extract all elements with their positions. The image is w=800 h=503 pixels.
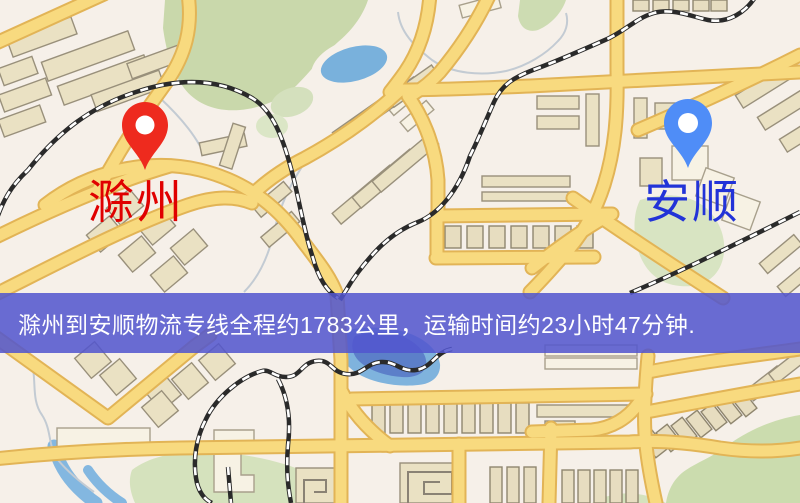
destination-pin-hole xyxy=(678,113,698,133)
destination-label: 安顺 xyxy=(644,180,740,226)
map-canvas xyxy=(0,0,800,503)
route-info-text: 滁州到安顺物流专线全程约1783公里，运输时间约23小时47分钟. xyxy=(18,306,695,340)
origin-label: 滁州 xyxy=(88,180,184,226)
origin-pin-hole xyxy=(136,116,155,135)
map-screenshot: 滁州 安顺 滁州到安顺物流专线全程约1783公里，运输时间约23小时47分钟. xyxy=(0,0,800,503)
route-info-banner: 滁州到安顺物流专线全程约1783公里，运输时间约23小时47分钟. xyxy=(0,293,800,353)
